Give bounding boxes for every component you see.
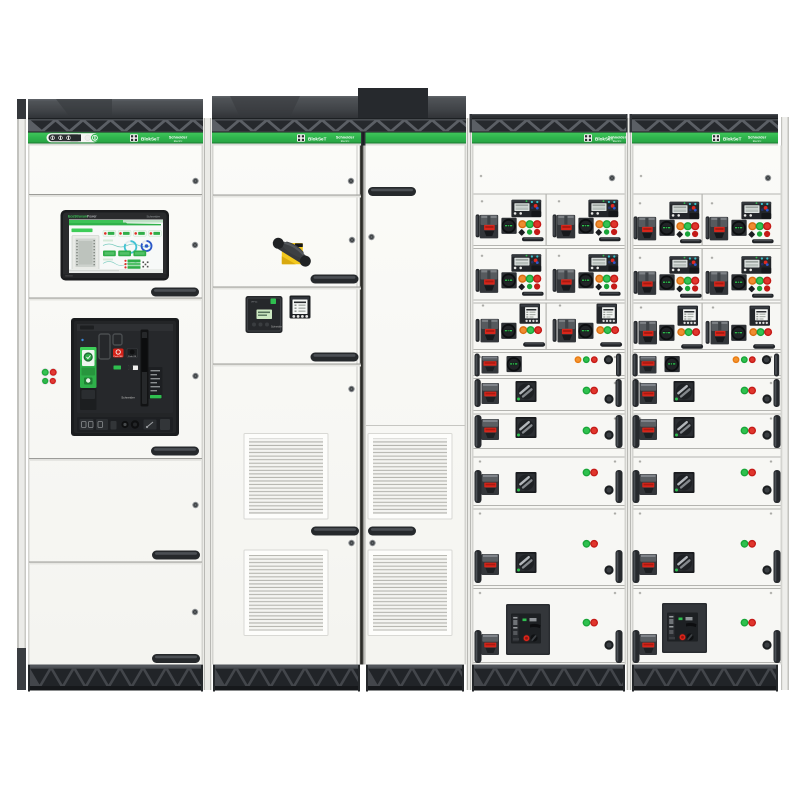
svg-text:VIP 4x: VIP 4x bbox=[251, 302, 258, 304]
svg-text:Schneider: Schneider bbox=[169, 135, 188, 139]
svg-text:Power: Power bbox=[87, 215, 97, 219]
svg-text:Electric: Electric bbox=[753, 139, 762, 143]
svg-text:BlokSeT: BlokSeT bbox=[308, 136, 327, 141]
svg-text:Electric: Electric bbox=[613, 139, 622, 143]
svg-text:EcoStruxure: EcoStruxure bbox=[68, 215, 88, 219]
svg-text:Push OFF: Push OFF bbox=[114, 356, 124, 358]
svg-text:Schneider: Schneider bbox=[271, 326, 282, 329]
svg-text:Schneider: Schneider bbox=[336, 135, 355, 139]
svg-text:Schneider: Schneider bbox=[608, 135, 627, 139]
svg-text:Schneider: Schneider bbox=[146, 215, 160, 219]
svg-text:Push ON: Push ON bbox=[128, 356, 137, 358]
svg-text:BlokSeT: BlokSeT bbox=[723, 136, 742, 141]
svg-text:BlokSeT: BlokSeT bbox=[141, 136, 160, 141]
svg-text:Schneider: Schneider bbox=[748, 135, 767, 139]
svg-text:Electric: Electric bbox=[341, 139, 350, 143]
svg-text:Schneider: Schneider bbox=[121, 396, 135, 400]
svg-text:Electric: Electric bbox=[174, 139, 183, 143]
